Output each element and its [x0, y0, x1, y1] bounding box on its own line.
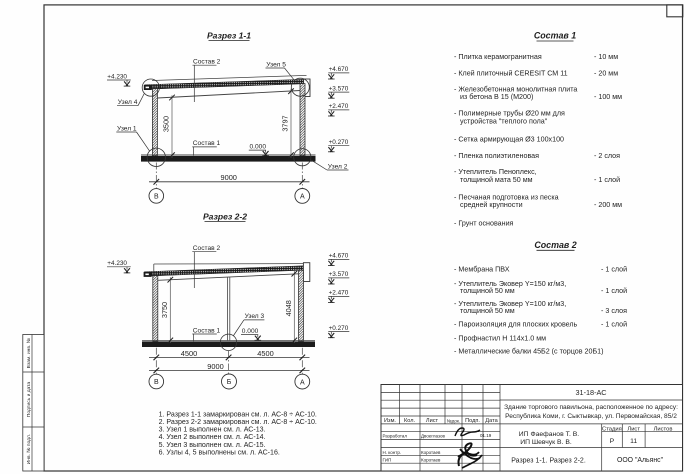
- svg-text:01.19: 01.19: [480, 433, 492, 438]
- svg-text:11: 11: [630, 438, 637, 445]
- svg-text:+4.230: +4.230: [107, 73, 127, 80]
- svg-text:Инв. № подл.: Инв. № подл.: [26, 434, 32, 464]
- svg-text:Н. контр.: Н. контр.: [383, 450, 402, 455]
- svg-text:Разрез 1-1: Разрез 1-1: [207, 30, 251, 40]
- svg-text:31-18-АС: 31-18-АС: [575, 388, 606, 397]
- svg-text:Взам. инв. №: Взам. инв. №: [26, 338, 32, 368]
- svg-text:ООО "Альянс": ООО "Альянс": [617, 457, 664, 464]
- svg-text:Состав 1: Состав 1: [193, 327, 221, 334]
- svg-text:Узел 3: Узел 3: [245, 313, 265, 320]
- svg-text:- Профнастил Н 114х1.0 мм: - Профнастил Н 114х1.0 мм: [454, 334, 546, 342]
- svg-text:- 2 слоя: - 2 слоя: [594, 152, 620, 160]
- svg-text:- Металлические балки 45Б2 (с: - Металлические балки 45Б2 (с торцов 20Б…: [454, 347, 603, 355]
- svg-text:Состав 2: Состав 2: [193, 59, 221, 66]
- svg-text:+4.670: +4.670: [329, 66, 349, 73]
- svg-text:- Мембрана ПВХ: - Мембрана ПВХ: [454, 266, 510, 274]
- svg-text:Узел 5: Узел 5: [266, 61, 286, 68]
- svg-text:0.000: 0.000: [242, 328, 259, 335]
- svg-text:3797: 3797: [281, 115, 290, 131]
- svg-text:Р: Р: [610, 438, 615, 445]
- svg-text:- Сетка армирующая Ø3 100x100: - Сетка армирующая Ø3 100x100: [454, 136, 564, 144]
- svg-text:3500: 3500: [162, 116, 171, 132]
- svg-text:Кол.: Кол.: [404, 418, 416, 424]
- svg-text:Состав 2: Состав 2: [193, 245, 221, 252]
- svg-text:9000: 9000: [207, 362, 223, 371]
- svg-text:+0.270: +0.270: [329, 139, 349, 146]
- svg-text:- Плитка керамогранитная: - Плитка керамогранитная: [454, 53, 542, 61]
- svg-text:Узел 4: Узел 4: [118, 99, 138, 106]
- svg-text:- 100 мм: - 100 мм: [594, 93, 622, 101]
- svg-text:Двоеглазов: Двоеглазов: [421, 434, 446, 439]
- svg-text:толщиной 50 мм: толщиной 50 мм: [460, 287, 515, 295]
- svg-text:4500: 4500: [257, 349, 273, 358]
- svg-text:3. Узел 1 выполнен см. л. АС-1: 3. Узел 1 выполнен см. л. АС-13.: [159, 427, 266, 434]
- svg-text:из бетона В 15 (М200): из бетона В 15 (М200): [460, 93, 533, 101]
- svg-text:Здание торгового павильона, ра: Здание торгового павильона, расположенно…: [504, 404, 678, 411]
- svg-text:1. Разрез 1-1 замаркирован см.: 1. Разрез 1-1 замаркирован см. л. АС-8 ÷…: [159, 412, 317, 419]
- svg-text:- Пленка полиэтиленовая: - Пленка полиэтиленовая: [454, 152, 539, 160]
- svg-text:Дата: Дата: [485, 418, 498, 424]
- svg-text:Узел 2: Узел 2: [328, 163, 348, 170]
- svg-text:Листов: Листов: [654, 426, 673, 432]
- svg-text:Изм.: Изм.: [384, 418, 396, 424]
- svg-text:Разрез 2-2: Разрез 2-2: [203, 211, 247, 221]
- svg-text:Подп.: Подп.: [465, 418, 480, 424]
- svg-text:Лист: Лист: [426, 418, 439, 424]
- svg-text:- 3 слоя: - 3 слоя: [601, 307, 627, 315]
- svg-text:9000: 9000: [220, 173, 236, 182]
- svg-text:ГИП: ГИП: [383, 458, 392, 463]
- svg-text:- 1 слой: - 1 слой: [594, 176, 620, 184]
- svg-text:Состав 1: Состав 1: [534, 31, 576, 41]
- svg-text:4048: 4048: [284, 300, 293, 316]
- svg-text:- 200 мм: - 200 мм: [594, 201, 622, 209]
- svg-text:+4.670: +4.670: [329, 253, 349, 260]
- svg-text:+2.470: +2.470: [329, 103, 349, 110]
- svg-text:- Пароизоляция для плоских кро: - Пароизоляция для плоских кровель: [454, 321, 578, 329]
- svg-text:2. Разрез 2-2 замаркирован см.: 2. Разрез 2-2 замаркирован см. л. АС-8 ÷…: [159, 419, 317, 426]
- svg-text:В: В: [154, 379, 159, 386]
- svg-text:А: А: [300, 379, 305, 386]
- svg-text:Узел 1: Узел 1: [117, 125, 137, 132]
- svg-text:Республика Коми, г. Сыктывкар,: Республика Коми, г. Сыктывкар, ул. Перво…: [505, 412, 677, 420]
- svg-text:Подпись и дата: Подпись и дата: [26, 382, 32, 417]
- svg-text:Разрез 1-1. Разрез 2-2.: Разрез 1-1. Разрез 2-2.: [511, 457, 586, 464]
- svg-text:устройства "теплого пола": устройства "теплого пола": [460, 117, 548, 125]
- svg-text:4500: 4500: [181, 349, 197, 358]
- svg-text:ИП Фаефанов Т. В.: ИП Фаефанов Т. В.: [519, 431, 580, 438]
- svg-text:А: А: [300, 194, 305, 201]
- svg-text:0.000: 0.000: [250, 143, 267, 150]
- svg-text:Б: Б: [227, 379, 232, 386]
- svg-text:Коротаев: Коротаев: [421, 458, 441, 463]
- svg-text:- 10 мм: - 10 мм: [594, 53, 618, 61]
- svg-text:6. Узлы 4, 5 выполнены см. л.: 6. Узлы 4, 5 выполнены см. л. АС-16.: [159, 449, 280, 456]
- svg-text:+2.470: +2.470: [329, 290, 349, 297]
- svg-text:- Клей плиточный CERESIT СМ 11: - Клей плиточный CERESIT СМ 11: [454, 69, 568, 77]
- svg-text:Стадия: Стадия: [602, 426, 622, 432]
- svg-text:толщиной 50 мм: толщиной 50 мм: [460, 307, 515, 315]
- svg-text:+3.570: +3.570: [329, 271, 349, 278]
- svg-text:- 1 слой: - 1 слой: [601, 266, 627, 274]
- svg-text:В: В: [154, 194, 159, 201]
- svg-text:- Грунт основания: - Грунт основания: [454, 219, 514, 227]
- svg-text:+4.230: +4.230: [107, 260, 127, 267]
- svg-text:Лист: Лист: [627, 426, 640, 432]
- svg-text:- 1 слой: - 1 слой: [601, 287, 627, 295]
- svg-text:толщиной мата 50 мм: толщиной мата 50 мм: [460, 176, 533, 184]
- svg-text:+3.570: +3.570: [329, 85, 349, 92]
- svg-text:3750: 3750: [160, 302, 169, 318]
- svg-text:- 1 слой: - 1 слой: [601, 321, 627, 329]
- svg-text:№док.: №док.: [447, 418, 460, 423]
- svg-text:- 20 мм: - 20 мм: [594, 69, 618, 77]
- svg-text:5. Узел 3 выполнен см. л. АС-1: 5. Узел 3 выполнен см. л. АС-15.: [159, 442, 266, 449]
- svg-text:+0.270: +0.270: [329, 325, 349, 332]
- svg-text:средней крупности: средней крупности: [460, 201, 523, 209]
- svg-text:Коротаев: Коротаев: [421, 450, 441, 455]
- svg-text:Разработал: Разработал: [383, 434, 408, 439]
- svg-text:Состав 1: Состав 1: [193, 140, 221, 147]
- svg-text:Состав 2: Состав 2: [534, 240, 576, 250]
- svg-text:ИП Шевчук В. В.: ИП Шевчук В. В.: [520, 439, 572, 446]
- svg-text:4. Узел 2 выполнен см. л. АС-1: 4. Узел 2 выполнен см. л. АС-14.: [159, 434, 266, 441]
